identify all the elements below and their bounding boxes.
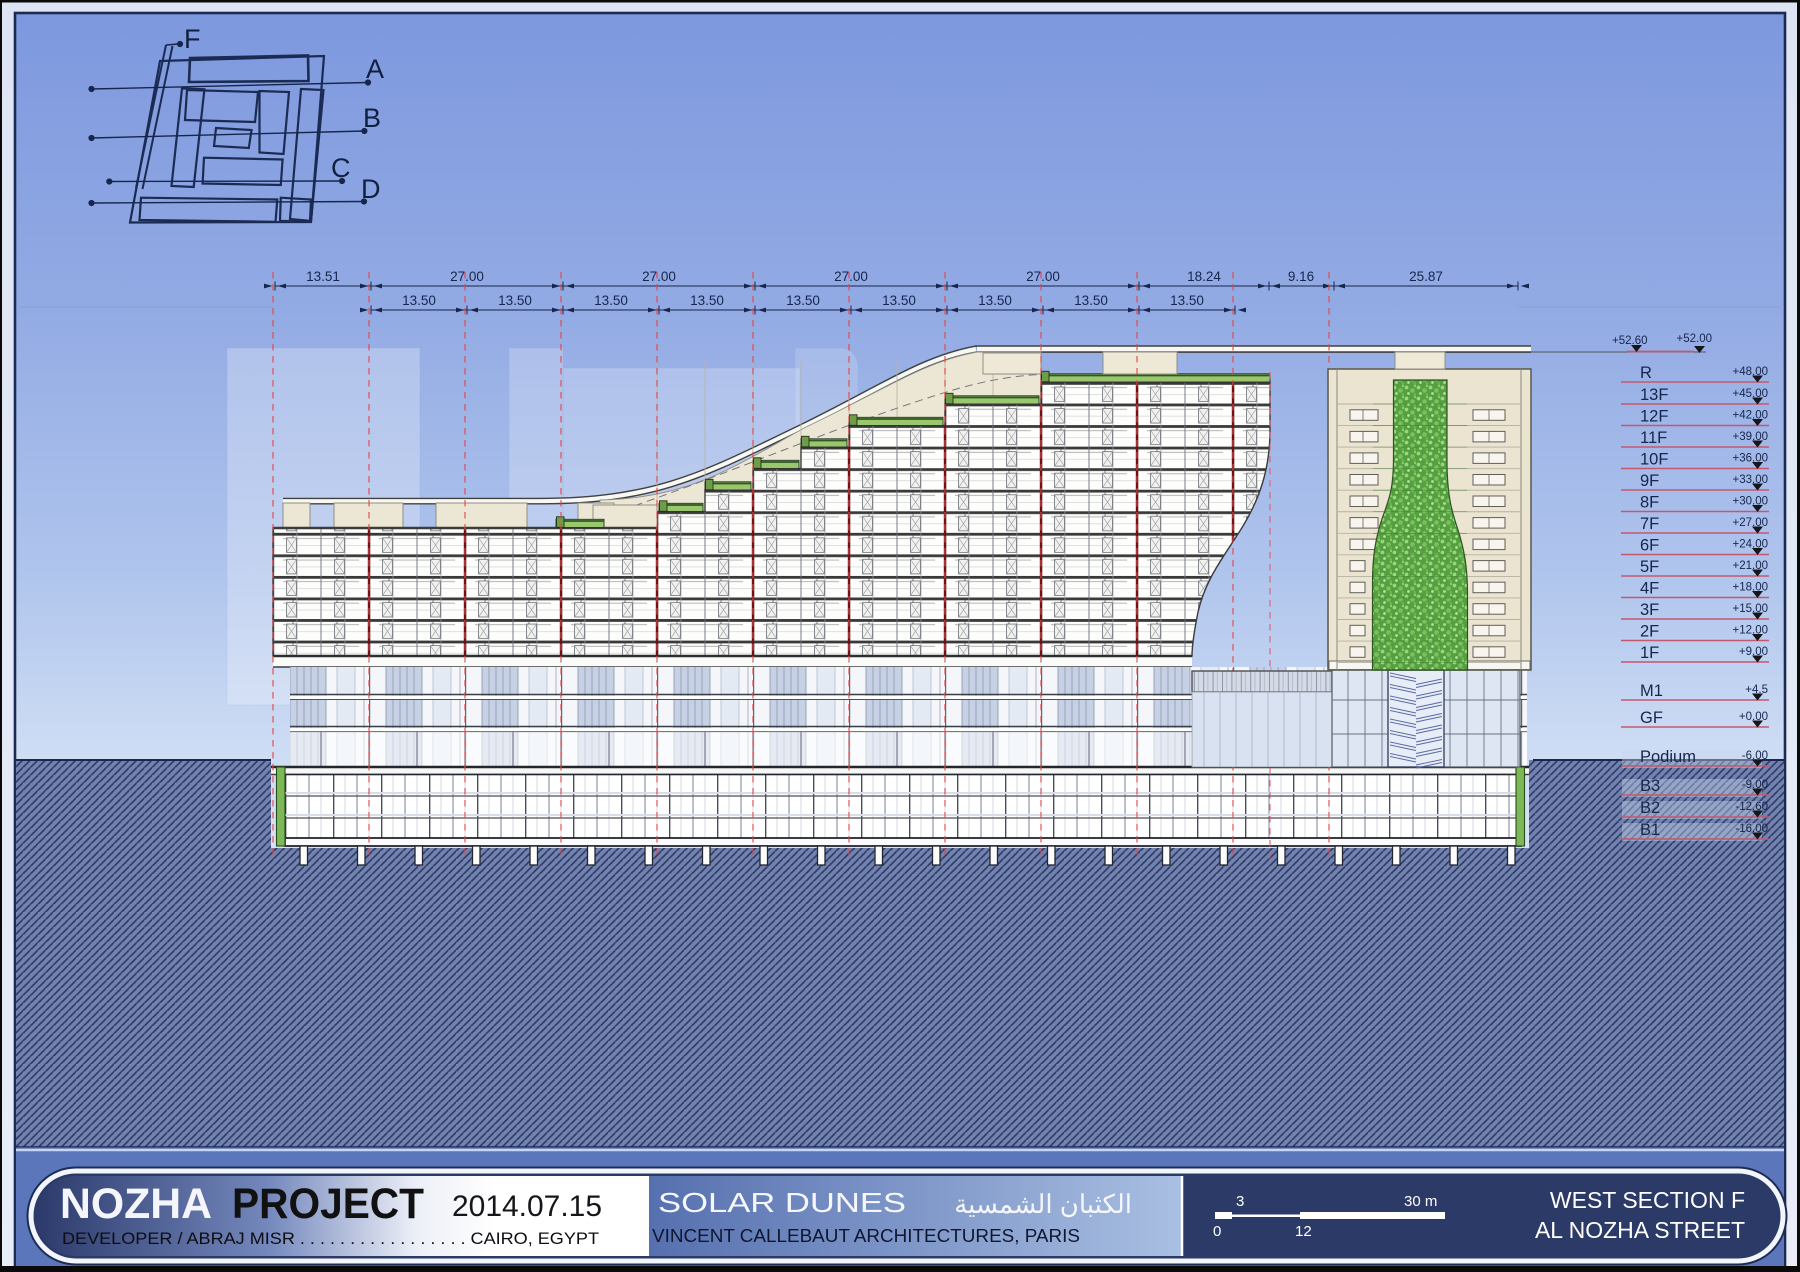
svg-text:M1: M1	[1640, 682, 1663, 700]
svg-text:13.50: 13.50	[978, 293, 1012, 308]
svg-text:13.50: 13.50	[786, 293, 820, 308]
svg-text:+30.00: +30.00	[1733, 496, 1769, 508]
svg-text:13.50: 13.50	[498, 293, 532, 308]
svg-text:27.00: 27.00	[834, 269, 868, 284]
svg-text:+48.00: +48.00	[1733, 366, 1769, 378]
svg-text:3: 3	[1236, 1193, 1244, 1210]
svg-text:27.00: 27.00	[642, 269, 676, 284]
svg-text:+21.00: +21.00	[1733, 560, 1769, 572]
svg-text:30 m: 30 m	[1404, 1193, 1437, 1210]
svg-text:27.00: 27.00	[1026, 269, 1060, 284]
svg-text:+36.00: +36.00	[1733, 453, 1769, 465]
svg-text:B: B	[363, 103, 381, 133]
svg-text:2F: 2F	[1640, 623, 1659, 641]
svg-text:27.00: 27.00	[450, 269, 484, 284]
svg-text:13.50: 13.50	[1074, 293, 1108, 308]
svg-text:GF: GF	[1640, 709, 1663, 727]
svg-text:13.50: 13.50	[594, 293, 628, 308]
svg-text:13.51: 13.51	[306, 269, 340, 284]
svg-text:+52.00: +52.00	[1677, 333, 1713, 345]
svg-text:13.50: 13.50	[402, 293, 436, 308]
svg-text:+52.60: +52.60	[1612, 335, 1648, 347]
svg-text:7F: 7F	[1640, 515, 1659, 533]
svg-text:D: D	[361, 174, 381, 204]
svg-text:+24.00: +24.00	[1733, 539, 1769, 551]
svg-text:NOZHA: NOZHA	[60, 1180, 212, 1228]
svg-text:B1: B1	[1640, 821, 1660, 839]
svg-text:+33.00: +33.00	[1733, 474, 1769, 486]
svg-text:B2: B2	[1640, 799, 1660, 817]
svg-text:6F: 6F	[1640, 537, 1659, 555]
svg-text:13.50: 13.50	[882, 293, 916, 308]
svg-text:+27.00: +27.00	[1733, 517, 1769, 529]
svg-text:25.87: 25.87	[1409, 269, 1443, 284]
svg-text:+18.00: +18.00	[1733, 582, 1769, 594]
svg-text:-12.60: -12.60	[1735, 801, 1768, 813]
svg-text:12F: 12F	[1640, 408, 1668, 426]
svg-text:13.50: 13.50	[1170, 293, 1204, 308]
svg-text:2014.07.15: 2014.07.15	[452, 1190, 602, 1223]
svg-text:C: C	[331, 153, 351, 183]
svg-text:+39.00: +39.00	[1733, 431, 1769, 443]
svg-text:8F: 8F	[1640, 494, 1659, 512]
svg-text:13.50: 13.50	[690, 293, 724, 308]
svg-text:10F: 10F	[1640, 451, 1668, 469]
svg-text:PROJECT: PROJECT	[232, 1180, 424, 1228]
svg-text:9F: 9F	[1640, 472, 1659, 490]
svg-text:+15.00: +15.00	[1733, 603, 1769, 615]
svg-text:+45.00: +45.00	[1733, 388, 1769, 400]
svg-text:AL NOZHA STREET: AL NOZHA STREET	[1535, 1217, 1745, 1243]
svg-text:0: 0	[1213, 1223, 1221, 1240]
svg-text:F: F	[184, 24, 201, 54]
svg-text:-16.00: -16.00	[1735, 823, 1768, 835]
svg-text:DEVELOPER / ABRAJ MISR . . . .: DEVELOPER / ABRAJ MISR . . . . . . . . .…	[62, 1229, 599, 1248]
svg-text:B3: B3	[1640, 777, 1660, 795]
svg-text:3F: 3F	[1640, 601, 1659, 619]
svg-text:12: 12	[1295, 1223, 1312, 1240]
svg-text:الكثبان الشمسية: الكثبان الشمسية	[954, 1189, 1132, 1219]
svg-text:WEST SECTION F: WEST SECTION F	[1550, 1187, 1745, 1213]
svg-text:SOLAR DUNES: SOLAR DUNES	[658, 1187, 906, 1218]
svg-text:9.16: 9.16	[1288, 269, 1314, 284]
svg-text:R: R	[1640, 364, 1652, 382]
svg-text:1F: 1F	[1640, 644, 1659, 662]
svg-text:A: A	[366, 54, 384, 84]
svg-text:Podium: Podium	[1640, 748, 1696, 766]
svg-text:4F: 4F	[1640, 580, 1659, 598]
svg-text:5F: 5F	[1640, 558, 1659, 576]
svg-text:18.24: 18.24	[1187, 269, 1221, 284]
svg-text:+42.00: +42.00	[1733, 410, 1769, 422]
svg-text:+12.00: +12.00	[1733, 625, 1769, 637]
svg-text:13F: 13F	[1640, 386, 1668, 404]
svg-text:VINCENT CALLEBAUT ARCHITECTURE: VINCENT CALLEBAUT ARCHITECTURES, PARIS	[652, 1225, 1080, 1246]
svg-text:11F: 11F	[1640, 429, 1667, 447]
